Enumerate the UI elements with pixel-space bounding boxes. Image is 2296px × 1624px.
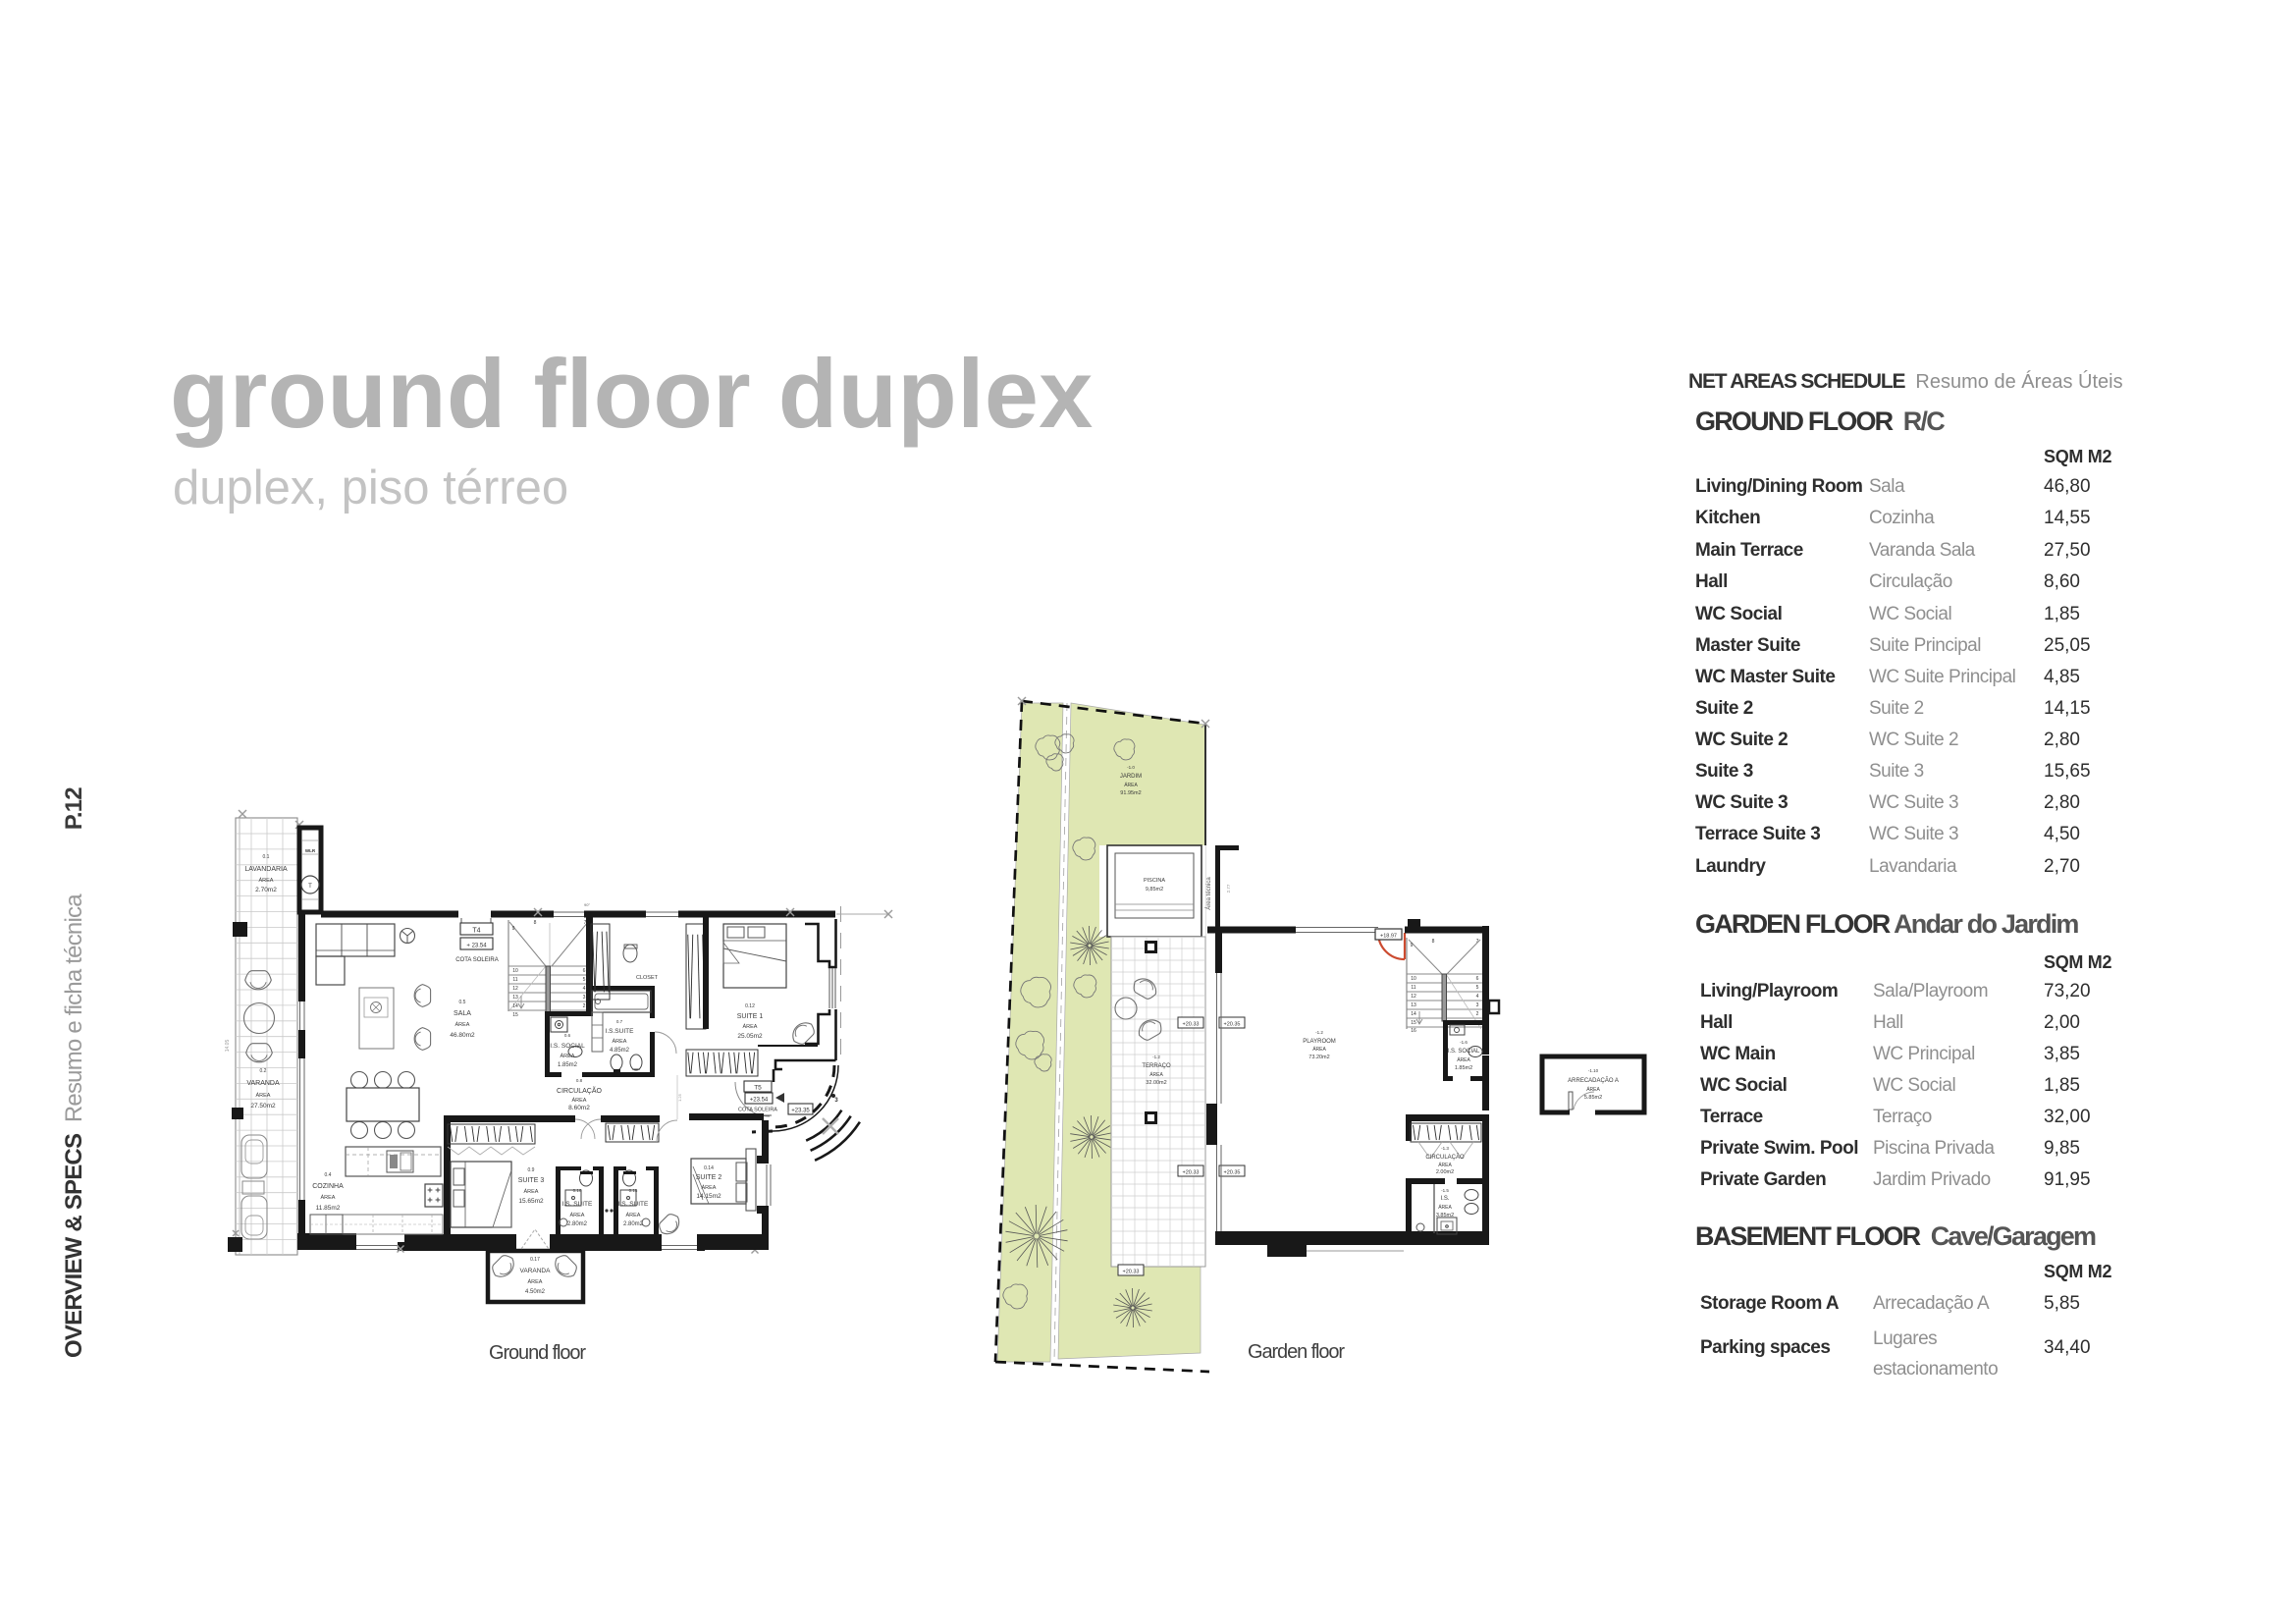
svg-text:+20.35: +20.35 [1224,1170,1241,1176]
svg-text:0.9: 0.9 [528,1167,535,1173]
svg-text:ÁREA: ÁREA [528,1278,543,1285]
svg-text:ÁREA: ÁREA [1438,1162,1452,1168]
svg-text:4.50m2: 4.50m2 [525,1289,546,1295]
svg-text:SALA: SALA [454,1010,471,1017]
svg-text:ÁREA: ÁREA [561,1053,575,1059]
svg-text:ÁREA: ÁREA [259,877,274,884]
svg-text:2.70m2: 2.70m2 [255,887,277,893]
svg-text:3: 3 [834,1098,838,1104]
svg-text:8.60m2: 8.60m2 [568,1105,590,1111]
svg-text:11: 11 [1411,985,1415,991]
svg-text:PLAYROOM: PLAYROOM [1303,1039,1336,1045]
svg-text:4.85m2: 4.85m2 [610,1048,630,1054]
svg-text:SUITE 2: SUITE 2 [696,1174,722,1181]
svg-text:ÁREA: ÁREA [1438,1204,1452,1211]
svg-text:10: 10 [1411,976,1416,982]
svg-text:0.12: 0.12 [745,1003,755,1009]
svg-text:ÁREA: ÁREA [321,1194,336,1201]
svg-text:ÁREA: ÁREA [256,1092,271,1099]
svg-text:COTA SOLEIRA: COTA SOLEIRA [738,1108,777,1113]
svg-text:-1.6: -1.6 [1460,1040,1468,1045]
svg-text:6: 6 [583,968,586,974]
svg-text:SUITE 3: SUITE 3 [518,1177,545,1184]
svg-text:Área técnica: Área técnica [1205,877,1212,910]
svg-text:COZINHA: COZINHA [312,1183,344,1190]
svg-text:14.05: 14.05 [225,1040,231,1053]
svg-text:ÁREA: ÁREA [626,1212,641,1218]
svg-text:8: 8 [534,920,537,926]
svg-text:I.S.SUITE: I.S.SUITE [606,1028,635,1035]
svg-text:+20.33: +20.33 [1183,1022,1200,1028]
svg-text:-1.5: -1.5 [1441,1188,1449,1193]
svg-text:1.25: 1.25 [677,1093,682,1102]
svg-text:ÁREA: ÁREA [1457,1056,1470,1063]
svg-text:+ 23.54: + 23.54 [466,944,487,949]
svg-text:WLR: WLR [305,848,316,853]
svg-text:2: 2 [583,1003,586,1009]
svg-text:T5: T5 [754,1085,762,1092]
svg-text:13: 13 [1411,1002,1416,1008]
svg-text:9: 9 [512,926,515,932]
svg-text:+23.54: +23.54 [750,1098,769,1104]
svg-text:2.80m2: 2.80m2 [623,1221,644,1227]
svg-text:0.8: 0.8 [576,1078,583,1083]
svg-text:0.5: 0.5 [459,1000,466,1005]
svg-text:73.20m2: 73.20m2 [1308,1055,1329,1060]
svg-text:LAVANDARIA: LAVANDARIA [244,866,288,873]
svg-text:+18.97: +18.97 [1380,934,1397,940]
svg-text:46.80m2: 46.80m2 [450,1032,475,1039]
svg-text:2.00m2: 2.00m2 [1436,1169,1454,1175]
svg-text:0.17: 0.17 [530,1257,540,1263]
svg-text:ÁREA: ÁREA [1586,1086,1600,1093]
svg-text:0.15: 0.15 [629,1188,638,1193]
svg-text:2: 2 [1476,1011,1479,1017]
svg-text:0.6: 0.6 [564,1033,571,1038]
svg-text:1.85m2: 1.85m2 [558,1062,578,1068]
svg-text:ARRECADAÇÃO A: ARRECADAÇÃO A [1568,1077,1619,1084]
svg-text:ÁREA: ÁREA [572,1097,587,1104]
svg-text:14: 14 [1411,1011,1416,1017]
svg-text:ÁREA: ÁREA [702,1184,717,1191]
svg-text:VARANDA: VARANDA [246,1080,280,1087]
svg-text:0.4: 0.4 [325,1172,332,1178]
svg-text:25.05m2: 25.05m2 [737,1033,763,1040]
svg-text:32.00m2: 32.00m2 [1146,1080,1166,1086]
svg-text:-1.2: -1.2 [1315,1030,1323,1035]
svg-text:7: 7 [1476,939,1479,945]
svg-text:I.S. SOCIAL: I.S. SOCIAL [550,1043,585,1050]
svg-text:ÁREA: ÁREA [455,1021,470,1028]
svg-text:COTA SOLEIRA: COTA SOLEIRA [455,957,499,963]
svg-text:8: 8 [1432,939,1435,945]
svg-text:15: 15 [1411,1020,1416,1026]
svg-text:-1.2: -1.2 [1152,1055,1160,1059]
svg-text:6: 6 [1476,976,1479,982]
svg-text:0.14: 0.14 [704,1165,714,1171]
svg-text:5: 5 [583,977,586,983]
svg-text:ÁREA: ÁREA [1149,1071,1163,1078]
svg-text:11.85m2: 11.85m2 [316,1205,341,1212]
svg-text:5.85m2: 5.85m2 [1584,1095,1602,1101]
svg-text:2.80m2: 2.80m2 [567,1221,588,1227]
svg-text:SUITE 1: SUITE 1 [737,1013,764,1020]
svg-text:3: 3 [583,995,586,1001]
svg-text:0.1: 0.1 [263,854,270,860]
svg-text:I.S. SUITE: I.S. SUITE [562,1201,593,1208]
svg-text:15: 15 [512,1012,518,1018]
svg-text:T: T [308,884,312,890]
svg-text:-1.10: -1.10 [1588,1068,1599,1073]
svg-text:-1.0: -1.0 [1127,765,1135,770]
svg-text:10: 10 [512,968,518,974]
svg-text:I.S. SOCIAL: I.S. SOCIAL [1448,1049,1480,1055]
svg-text:15.65m2: 15.65m2 [518,1198,544,1205]
svg-text:ÁREA: ÁREA [613,1038,627,1045]
svg-text:14.15m2: 14.15m2 [696,1193,721,1200]
svg-text:27.50m2: 27.50m2 [250,1103,276,1110]
svg-text:3: 3 [1476,1002,1479,1008]
svg-text:12: 12 [512,986,518,992]
svg-text:0.16: 0.16 [573,1188,582,1193]
svg-text:CIRCULAÇÃO: CIRCULAÇÃO [557,1086,602,1095]
svg-text:91.95m2: 91.95m2 [1120,790,1141,796]
svg-text:TERRAÇO: TERRAÇO [1142,1063,1171,1069]
svg-text:3.85m2: 3.85m2 [1436,1213,1454,1218]
svg-text:T4: T4 [472,928,480,935]
svg-text:-1.3: -1.3 [1441,1146,1449,1151]
svg-text:0.2: 0.2 [260,1068,267,1074]
svg-text:I.S. SUITE: I.S. SUITE [618,1201,649,1208]
svg-text:ÁREA: ÁREA [743,1023,758,1030]
svg-text:4: 4 [583,986,586,992]
svg-text:CIRCULAÇÃO: CIRCULAÇÃO [1425,1154,1465,1161]
svg-text:+20.33: +20.33 [1183,1170,1200,1176]
svg-text:9,85m2: 9,85m2 [1146,887,1163,893]
svg-text:1.85m2: 1.85m2 [1455,1065,1472,1071]
svg-text:I.S.: I.S. [1440,1196,1449,1202]
svg-text:5: 5 [1476,985,1479,991]
svg-text:ÁREA: ÁREA [570,1212,585,1218]
svg-text:4: 4 [1476,994,1479,1000]
svg-text:+20.33: +20.33 [1123,1270,1140,1275]
svg-text:JARDIM: JARDIM [1120,774,1142,780]
svg-text:11: 11 [512,977,517,983]
svg-text:ÁREA: ÁREA [524,1188,539,1195]
svg-text:ÁREA: ÁREA [1124,782,1138,788]
svg-text:14: 14 [512,1003,518,1009]
svg-text:90°: 90° [584,902,590,907]
svg-text:0.7: 0.7 [616,1019,623,1024]
svg-text:13: 13 [512,995,518,1001]
svg-text:16: 16 [1411,1028,1416,1034]
svg-text:+20.35: +20.35 [1224,1022,1241,1028]
svg-text:12: 12 [1411,994,1416,1000]
svg-text:PISCINA: PISCINA [1144,878,1165,884]
svg-text:CLOSET: CLOSET [636,975,659,981]
svg-text:ÁREA: ÁREA [1312,1046,1326,1053]
svg-text:2.77: 2.77 [1226,884,1231,893]
svg-text:9: 9 [1411,943,1414,948]
svg-text:VARANDA: VARANDA [520,1268,552,1274]
svg-text:+23.35: +23.35 [791,1109,810,1114]
